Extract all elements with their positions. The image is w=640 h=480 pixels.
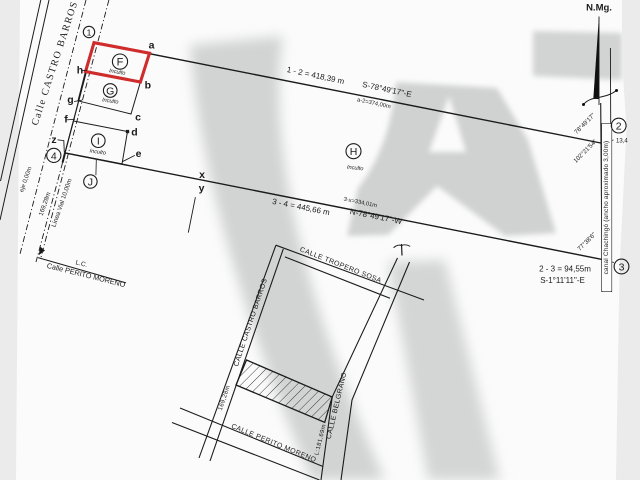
svg-text:13,4: 13,4 — [616, 139, 628, 145]
svg-text:H: H — [350, 146, 358, 158]
svg-text:e: e — [136, 148, 142, 160]
svg-text:y: y — [199, 183, 205, 195]
svg-text:1: 1 — [87, 27, 92, 37]
svg-text:G: G — [106, 85, 114, 97]
svg-text:a: a — [149, 40, 155, 52]
svg-text:g: g — [67, 94, 73, 106]
svg-text:x: x — [199, 169, 205, 181]
svg-text:h: h — [77, 65, 83, 77]
svg-text:N.Mg.: N.Mg. — [586, 3, 612, 14]
svg-text:3: 3 — [619, 262, 625, 274]
svg-text:J: J — [88, 176, 93, 188]
svg-text:z: z — [51, 134, 56, 146]
svg-text:c: c — [135, 112, 141, 124]
svg-text:2: 2 — [616, 121, 622, 133]
svg-text:f: f — [64, 114, 68, 126]
svg-text:S-1°11'11"-E: S-1°11'11"-E — [540, 276, 585, 285]
svg-text:2 - 3 = 94,55m: 2 - 3 = 94,55m — [539, 265, 591, 274]
svg-text:canal Chachingó (ancho aproxim: canal Chachingó (ancho aproximado 3,00m) — [603, 141, 610, 275]
svg-text:F: F — [117, 57, 124, 69]
svg-text:d: d — [131, 127, 137, 139]
svg-text:I: I — [97, 136, 100, 148]
svg-text:b: b — [145, 80, 151, 92]
svg-text:4: 4 — [51, 150, 57, 162]
